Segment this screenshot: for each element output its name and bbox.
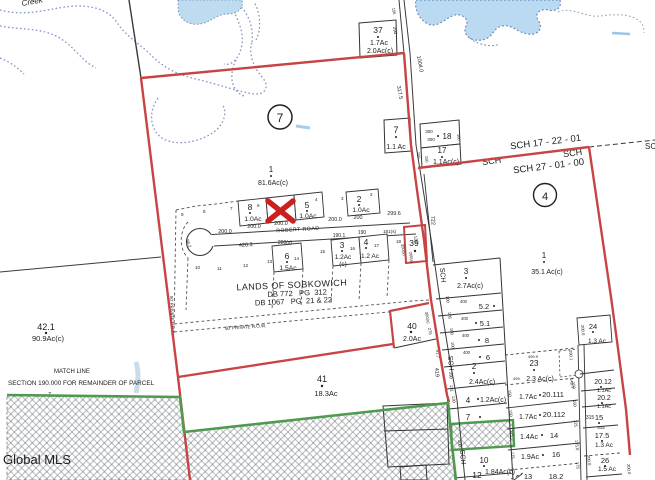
svg-text:7: 7 (277, 111, 284, 125)
svg-text:150: 150 (571, 382, 577, 390)
svg-text:5: 5 (305, 200, 310, 210)
svg-text:400: 400 (463, 350, 471, 355)
svg-text:40: 40 (407, 321, 417, 331)
svg-text:1.4Ac: 1.4Ac (520, 434, 538, 441)
svg-text:1.2Ac: 1.2Ac (335, 254, 352, 261)
svg-text:200: 200 (457, 440, 463, 448)
svg-text:8: 8 (485, 336, 489, 345)
svg-text:125: 125 (509, 430, 515, 438)
svg-text:10: 10 (480, 456, 489, 465)
svg-text:13: 13 (524, 472, 532, 480)
svg-text:37: 37 (373, 25, 383, 35)
svg-text:18: 18 (443, 132, 452, 141)
svg-text:13: 13 (267, 259, 273, 264)
svg-text:9: 9 (181, 212, 184, 217)
svg-text:315: 315 (597, 425, 605, 430)
svg-text:150: 150 (416, 152, 422, 160)
svg-text:1.0Ac: 1.0Ac (352, 207, 370, 214)
svg-text:10: 10 (195, 265, 201, 270)
svg-text:722: 722 (429, 216, 436, 226)
svg-text:15: 15 (320, 249, 326, 254)
svg-text:200.0: 200.0 (586, 455, 592, 467)
svg-text:1.3 Ac: 1.3 Ac (588, 338, 607, 345)
svg-text:SECTION 190.000 FOR REMAINDER: SECTION 190.000 FOR REMAINDER OF PARCEL (8, 380, 155, 387)
svg-text:4: 4 (466, 396, 471, 405)
svg-text:20.2: 20.2 (597, 395, 611, 402)
svg-text:420.3: 420.3 (239, 242, 253, 249)
svg-text:131: 131 (449, 385, 455, 393)
svg-text:300: 300 (427, 137, 435, 142)
svg-text:11: 11 (217, 266, 222, 271)
svg-text:1.0Ac: 1.0Ac (299, 213, 317, 220)
svg-text:12: 12 (472, 470, 482, 480)
svg-text:2: 2 (357, 194, 362, 204)
svg-text:290.1: 290.1 (568, 350, 574, 362)
svg-text:20.12: 20.12 (594, 379, 612, 386)
svg-text:200(s): 200(s) (278, 240, 293, 246)
svg-text:1.5Ac: 1.5Ac (279, 265, 297, 272)
svg-text:8: 8 (248, 202, 253, 212)
svg-text:181(s): 181(s) (383, 229, 396, 234)
svg-text:100: 100 (456, 134, 462, 142)
svg-text:1.7Ac: 1.7Ac (519, 394, 537, 401)
svg-text:SCH: SCH (645, 142, 655, 151)
svg-text:1.0Ac: 1.0Ac (244, 216, 262, 223)
svg-text:90.9Ac(c): 90.9Ac(c) (32, 334, 65, 343)
svg-text:1.5 Ac: 1.5 Ac (598, 466, 617, 473)
svg-text:105: 105 (447, 312, 453, 320)
svg-text:200.0: 200.0 (218, 229, 232, 235)
svg-text:16: 16 (350, 246, 356, 251)
svg-text:35.1 Ac(c): 35.1 Ac(c) (531, 269, 563, 276)
svg-text:200: 200 (354, 215, 363, 221)
svg-text:26: 26 (601, 456, 609, 465)
svg-text:6: 6 (486, 353, 490, 362)
svg-text:SCH: SCH (446, 356, 454, 371)
svg-text:18.2: 18.2 (549, 472, 564, 480)
svg-text:4: 4 (542, 191, 548, 203)
svg-text:24: 24 (589, 322, 597, 331)
svg-text:1.9Ac: 1.9Ac (521, 454, 539, 461)
svg-text:7: 7 (393, 125, 398, 135)
svg-text:20.112: 20.112 (543, 410, 565, 419)
svg-text:8: 8 (203, 209, 206, 214)
svg-text:400: 400 (462, 333, 470, 338)
svg-text:100: 100 (445, 296, 451, 304)
svg-text:14: 14 (550, 431, 558, 440)
svg-text:125: 125 (573, 420, 579, 428)
svg-text:1.7Ac: 1.7Ac (370, 40, 388, 47)
svg-text:15: 15 (595, 413, 603, 422)
svg-text:1.7Ac: 1.7Ac (519, 414, 537, 421)
svg-text:5.1: 5.1 (480, 319, 490, 328)
svg-text:200.0: 200.0 (247, 224, 261, 230)
svg-text:7: 7 (230, 206, 233, 211)
svg-text:17: 17 (374, 243, 380, 248)
svg-text:81.6Ac(c): 81.6Ac(c) (258, 180, 288, 187)
svg-text:315: 315 (586, 415, 595, 421)
svg-text:175: 175 (575, 462, 581, 470)
svg-text:299.6: 299.6 (387, 211, 401, 217)
svg-text:SCH: SCH (438, 268, 446, 283)
svg-text:14: 14 (294, 256, 300, 261)
svg-text:5.2: 5.2 (479, 302, 489, 311)
svg-text:17.5: 17.5 (595, 431, 610, 440)
svg-text:42.1: 42.1 (37, 322, 55, 332)
svg-text:499.9: 499.9 (528, 354, 539, 359)
svg-text:1: 1 (269, 165, 274, 174)
svg-text:41: 41 (317, 374, 327, 384)
svg-text:6: 6 (285, 251, 290, 261)
svg-text:4: 4 (364, 237, 369, 247)
svg-text:2.0Ac: 2.0Ac (403, 336, 421, 343)
svg-text:1.1 Ac: 1.1 Ac (386, 144, 406, 151)
svg-text:200.0: 200.0 (626, 464, 632, 476)
svg-text:3: 3 (464, 267, 469, 276)
svg-text:1.1Ac: 1.1Ac (597, 388, 611, 394)
svg-text:175: 175 (510, 452, 516, 460)
svg-text:300: 300 (425, 129, 433, 134)
svg-text:SCH: SCH (458, 450, 466, 465)
svg-text:3: 3 (340, 240, 345, 250)
svg-text:20.111: 20.111 (542, 390, 564, 399)
svg-text:2.3 Ac(c): 2.3 Ac(c) (526, 376, 554, 383)
svg-text:1.3 Ac: 1.3 Ac (595, 442, 614, 449)
svg-text:Global MLS: Global MLS (3, 452, 71, 467)
svg-text:2.7Ac(c): 2.7Ac(c) (457, 283, 483, 290)
svg-text:16: 16 (552, 450, 560, 459)
svg-text:150: 150 (507, 390, 513, 398)
svg-text:MATCH LINE: MATCH LINE (54, 369, 90, 375)
svg-text:150: 150 (508, 410, 514, 418)
svg-text:190.1: 190.1 (333, 233, 346, 239)
svg-text:499: 499 (513, 376, 520, 381)
svg-text:150: 150 (572, 400, 578, 408)
svg-text:200.0: 200.0 (580, 325, 586, 337)
svg-text:1.2Ac(c): 1.2Ac(c) (480, 397, 506, 404)
svg-text:1: 1 (542, 251, 547, 260)
svg-text:1.1Ac: 1.1Ac (597, 404, 611, 410)
svg-text:17: 17 (438, 146, 447, 155)
svg-text:400: 400 (460, 299, 468, 304)
svg-text:23: 23 (530, 359, 539, 368)
svg-text:419: 419 (433, 368, 440, 378)
svg-text:150: 150 (424, 156, 430, 164)
svg-text:400: 400 (461, 316, 469, 321)
svg-text:2.4Ac(c): 2.4Ac(c) (469, 379, 495, 386)
svg-text:12: 12 (243, 263, 249, 268)
svg-text:18.3Ac: 18.3Ac (314, 389, 338, 398)
svg-text:200.0: 200.0 (328, 217, 342, 223)
svg-text:200.0: 200.0 (274, 221, 288, 227)
svg-text:1.2 Ac: 1.2 Ac (361, 253, 380, 260)
svg-text:2: 2 (472, 362, 477, 371)
svg-text:100: 100 (449, 328, 455, 336)
svg-text:7: 7 (466, 413, 471, 422)
svg-text:(c): (c) (339, 261, 347, 268)
svg-text:190: 190 (358, 230, 367, 236)
svg-text:100: 100 (450, 342, 456, 350)
svg-text:39: 39 (409, 238, 419, 248)
svg-text:290: 290 (448, 372, 454, 380)
svg-text:130: 130 (451, 396, 457, 404)
svg-text:175.0: 175.0 (574, 440, 580, 452)
